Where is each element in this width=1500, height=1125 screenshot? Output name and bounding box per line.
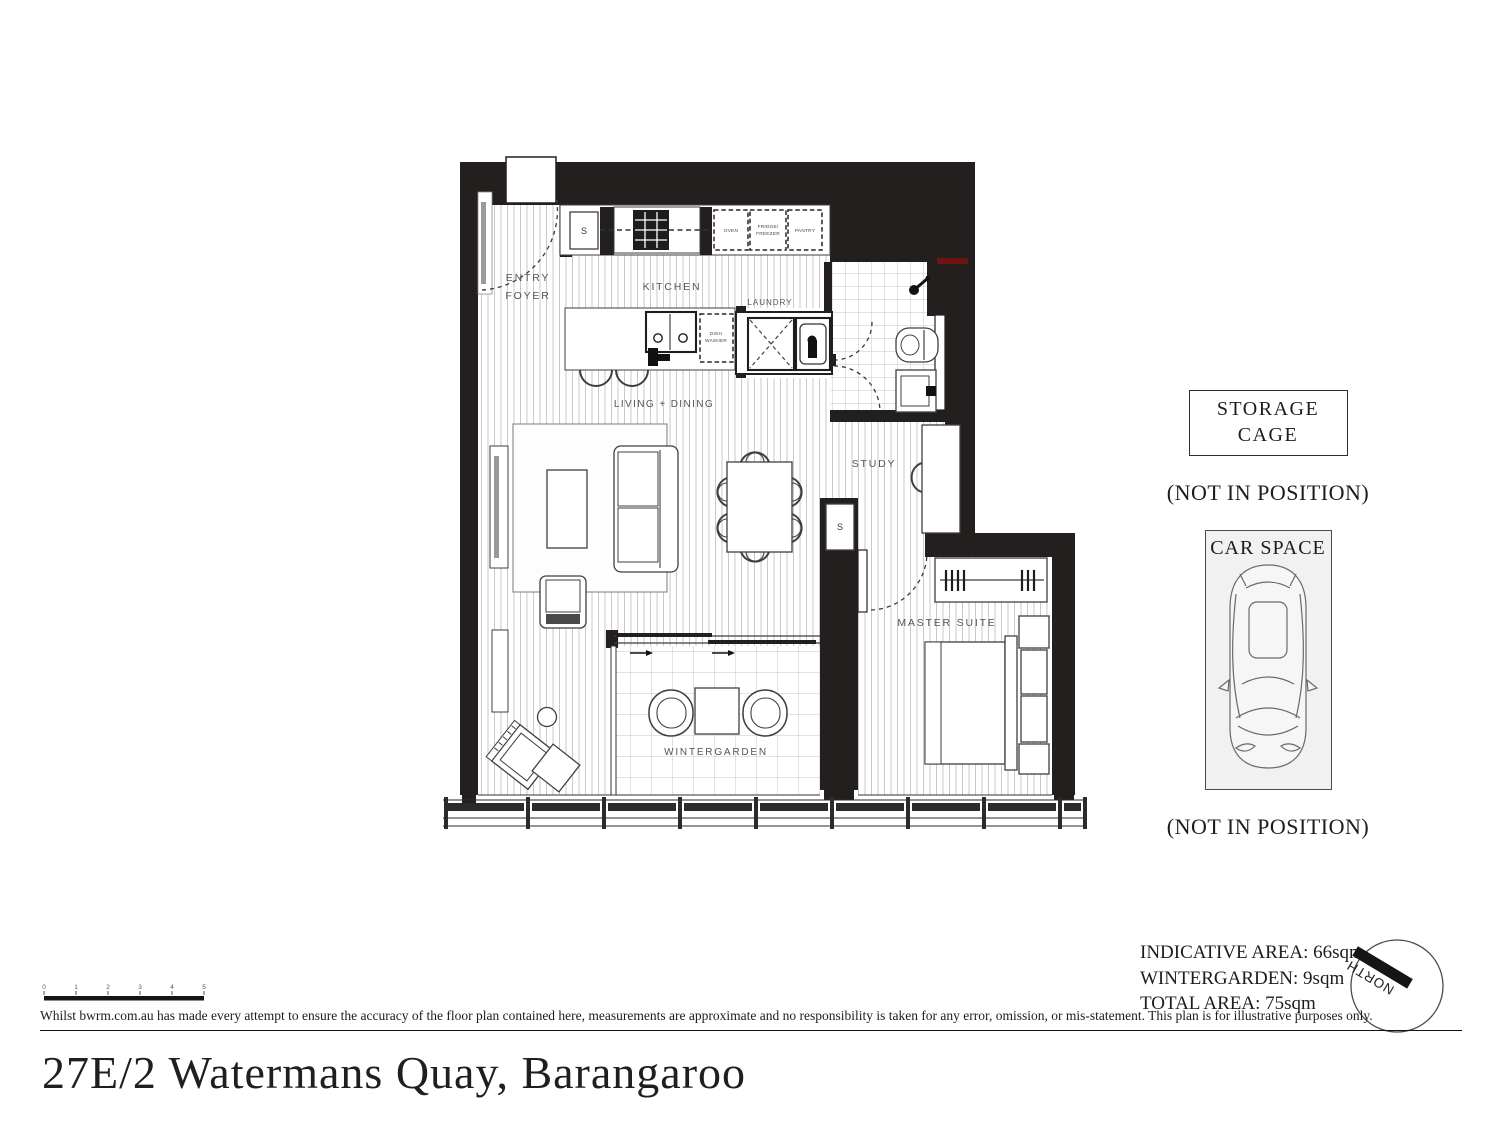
property-address: 27E/2 Watermans Quay, Barangaroo: [42, 1046, 746, 1099]
label-entry-2: FOYER: [505, 290, 550, 302]
label-wintergarden: WINTERGARDEN: [664, 747, 768, 758]
car-not-in-position: (NOT IN POSITION): [1150, 814, 1386, 840]
red-mark: [937, 258, 968, 264]
scale-bar: 0 1 2 3 4 5: [42, 982, 207, 1006]
bedside-table: [1019, 616, 1049, 648]
storage-cage-box: STORAGE CAGE: [1189, 390, 1348, 456]
scale-tick-2: 2: [106, 984, 110, 991]
indicative-area: INDICATIVE AREA: 66sqm: [1140, 940, 1364, 966]
storage-marker-kitchen: S: [581, 226, 587, 236]
master-door: [858, 550, 867, 612]
oven-label: OVEN: [724, 228, 739, 234]
car-space-label: CAR SPACE: [1206, 537, 1331, 560]
label-laundry: LAUNDRY: [747, 298, 792, 307]
outdoor-table: [695, 688, 739, 734]
bedside-table: [1019, 744, 1049, 774]
coffee-table: [547, 470, 587, 548]
label-living-dining: LIVING + DINING: [614, 399, 714, 410]
kitchen-sink: [646, 312, 696, 352]
scale-tick-4: 4: [170, 984, 174, 991]
floorplan-drawing: S OVEN FRIDGE/ FREEZER PANTRY DISH WASHE…: [430, 145, 1100, 855]
label-master-suite: MASTER SUITE: [897, 617, 996, 629]
fridge-label-1: FRIDGE/: [758, 224, 779, 230]
dishwasher: [700, 314, 733, 362]
tub-tap-icon: [808, 340, 817, 358]
side-table: [538, 708, 557, 727]
area-summary: INDICATIVE AREA: 66sqm WINTERGARDEN: 9sq…: [1140, 940, 1364, 1017]
laundry-fixtures: [736, 312, 832, 374]
wintergarden-area: WINTERGARDEN: 9sqm: [1140, 966, 1364, 992]
sink-tap-icon: [648, 348, 658, 366]
dishwasher-label-2: WASHER: [705, 338, 727, 344]
car-icon: [1216, 560, 1320, 774]
toilet: [896, 328, 938, 362]
car-space-box: CAR SPACE: [1205, 530, 1332, 790]
side-annotations: STORAGE CAGE (NOT IN POSITION) CAR SPACE: [1150, 390, 1386, 840]
vanity-tap-icon: [926, 386, 936, 396]
storage-cage-label-1: STORAGE: [1190, 396, 1347, 422]
scale-tick-5: 5: [202, 984, 206, 991]
dining-table: [727, 462, 792, 552]
dishwasher-label-1: DISH: [710, 331, 723, 337]
storage-not-in-position: (NOT IN POSITION): [1150, 480, 1386, 506]
storage-cage-label-2: CAGE: [1190, 422, 1347, 448]
scale-tick-1: 1: [74, 984, 78, 991]
window-band: [443, 795, 1087, 829]
label-study: STUDY: [852, 458, 897, 470]
storage-marker-study: S: [837, 522, 843, 532]
fridge-label-2: FREEZER: [756, 231, 780, 237]
entry-door: [506, 157, 556, 203]
console: [492, 630, 508, 712]
label-kitchen: KITCHEN: [643, 281, 702, 293]
fridge-freezer: [750, 210, 786, 250]
floorplan-page: S OVEN FRIDGE/ FREEZER PANTRY DISH WASHE…: [0, 0, 1500, 1125]
disclaimer-text: Whilst bwrm.com.au has made every attemp…: [40, 1008, 1462, 1031]
scale-tick-3: 3: [138, 984, 142, 991]
study-desk: [922, 425, 960, 533]
bed-headboard: [1005, 636, 1017, 770]
pantry-label: PANTRY: [795, 228, 816, 234]
scale-tick-0: 0: [42, 984, 46, 991]
label-entry-1: ENTRY: [506, 272, 550, 284]
